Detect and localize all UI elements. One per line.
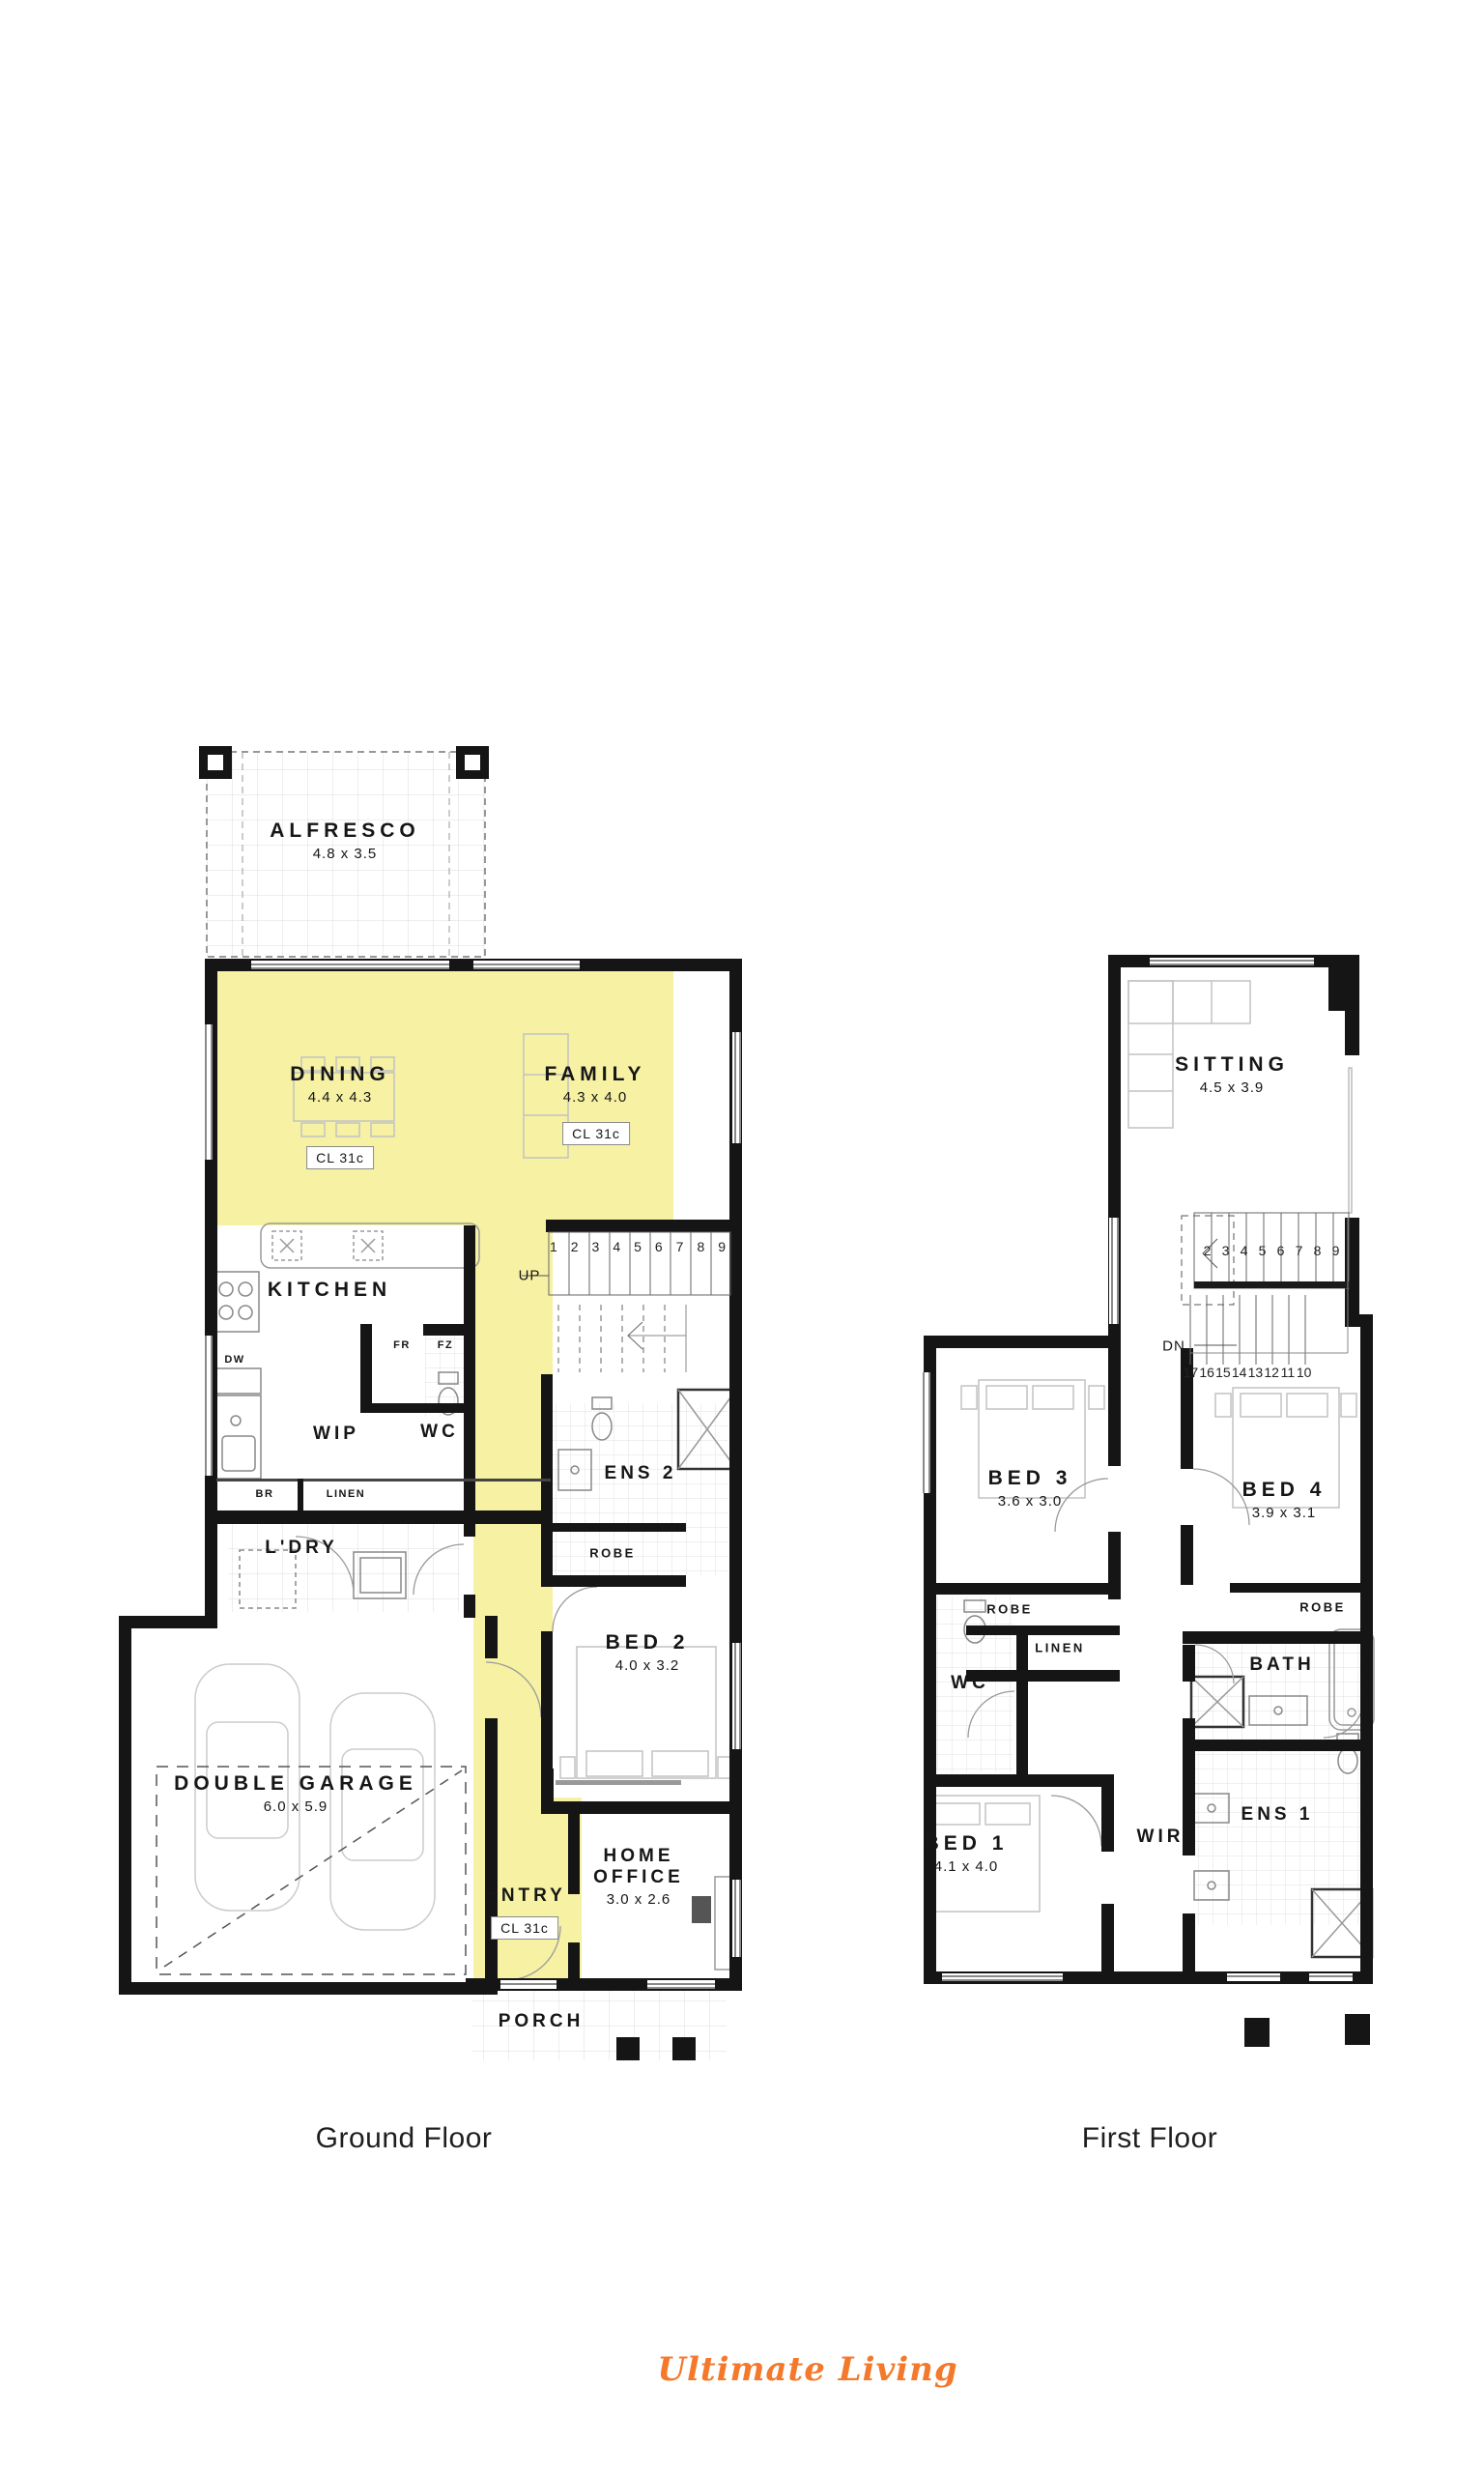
- room-label-home-office: HOME OFFICE 3.0 x 2.6: [571, 1846, 706, 1908]
- family-ceiling-tag: CL 31c: [562, 1122, 630, 1145]
- ground-floor-caption: Ground Floor: [316, 2122, 493, 2155]
- room-label-wc: WC: [420, 1422, 459, 1443]
- room-label-ens1: ENS 1: [1239, 1804, 1316, 1826]
- linen-label-ground: LINEN: [327, 1488, 366, 1500]
- ground-floor-plan: ALFRESCO 4.8 x 3.5 DINING 4.4 x 4.3 CL 3…: [106, 744, 754, 2068]
- freezer-label: FZ: [438, 1339, 453, 1351]
- dishwasher-label: DW: [224, 1354, 244, 1366]
- room-label-dining: DINING 4.4 x 4.3: [290, 1063, 390, 1106]
- cooktop-icon: [213, 1272, 259, 1332]
- fridge-label: FR: [393, 1339, 411, 1351]
- family-dims: 4.3 x 4.0: [544, 1089, 645, 1106]
- tiled-floors-first: [936, 1597, 1372, 1925]
- room-label-ldry: L'DRY: [265, 1538, 338, 1559]
- entry-ceiling-tag: CL 31c: [491, 1916, 558, 1940]
- alfresco-name: ALFRESCO: [270, 820, 420, 843]
- alfresco-dims: 4.8 x 3.5: [270, 846, 420, 862]
- kitchen-island-icon: [261, 1223, 479, 1268]
- room-label-garage: DOUBLE GARAGE 6.0 x 5.9: [174, 1772, 417, 1815]
- room-label-wir: WIR: [1137, 1827, 1184, 1848]
- robe-label-right: ROBE: [1299, 1600, 1346, 1615]
- room-label-bed1: BED 1 4.1 x 4.0: [925, 1832, 1009, 1875]
- room-label-wc-first: WC: [951, 1673, 989, 1694]
- broom-label: BR: [256, 1488, 274, 1500]
- family-name: FAMILY: [544, 1063, 645, 1086]
- ultimate-living-logo: Ultimate Living: [657, 2350, 957, 2389]
- stair-numbers-lower: 1716151413121110: [1183, 1365, 1312, 1380]
- room-label-porch: PORCH: [499, 2011, 585, 2032]
- room-label-bed3: BED 3 3.6 x 3.0: [988, 1467, 1072, 1510]
- robe-label-left: ROBE: [986, 1602, 1033, 1617]
- room-label-family: FAMILY 4.3 x 4.0: [544, 1063, 645, 1106]
- stairs-up-label: UP: [519, 1268, 541, 1284]
- room-label-bath: BATH: [1249, 1654, 1314, 1676]
- stairs-dn-label: DN: [1162, 1338, 1185, 1355]
- dining-dims: 4.4 x 4.3: [290, 1089, 390, 1106]
- room-label-wip: WIP: [313, 1424, 359, 1445]
- dining-name: DINING: [290, 1063, 390, 1086]
- room-label-entry: ENTRY: [485, 1885, 566, 1907]
- room-label-alfresco: ALFRESCO 4.8 x 3.5: [270, 820, 420, 862]
- staircase-first: [1182, 1213, 1351, 1365]
- linen-label-first: LINEN: [1035, 1641, 1085, 1655]
- first-floor-caption: First Floor: [1082, 2122, 1218, 2155]
- room-label-sitting: SITTING 4.5 x 3.9: [1175, 1053, 1289, 1096]
- dining-ceiling-tag: CL 31c: [306, 1146, 374, 1169]
- room-label-bed4: BED 4 3.9 x 3.1: [1242, 1479, 1327, 1521]
- room-label-ens2: ENS 2: [602, 1463, 679, 1484]
- sink-icon: [214, 1368, 261, 1479]
- window-seat: [1349, 1068, 1352, 1213]
- room-label-kitchen: KITCHEN: [268, 1279, 391, 1302]
- robe-label-ground: ROBE: [589, 1546, 636, 1561]
- stair-numbers-ground: 123456789: [543, 1239, 732, 1254]
- stair-numbers-upper: 23456789: [1198, 1243, 1345, 1258]
- first-floor-plan: SITTING 4.5 x 3.9 23456789 DN 1716151413…: [908, 928, 1391, 2087]
- room-label-bed2: BED 2 4.0 x 3.2: [606, 1631, 690, 1674]
